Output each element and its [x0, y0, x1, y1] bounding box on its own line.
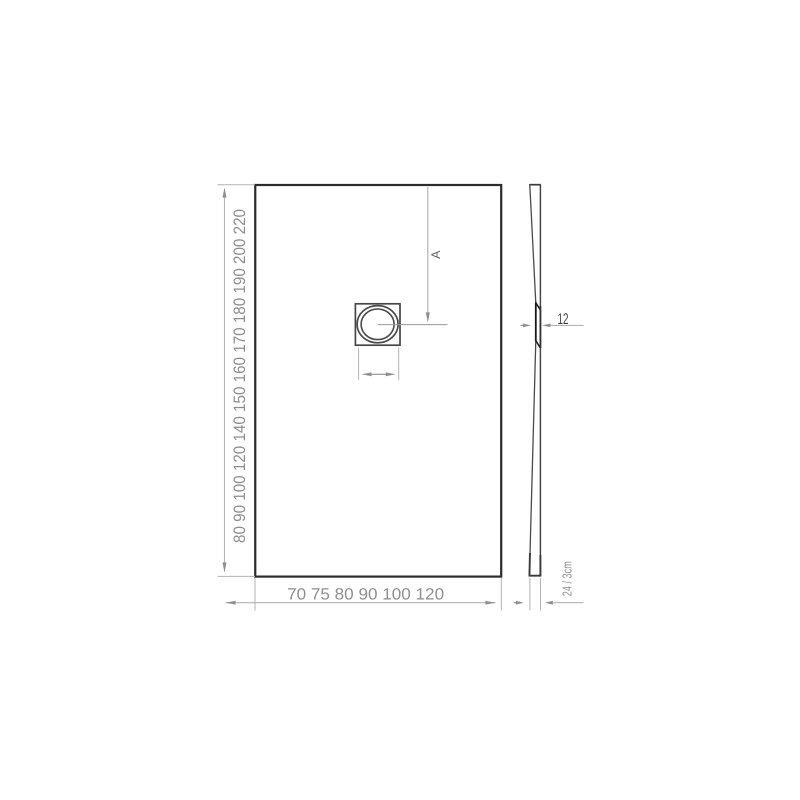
svg-text:70 75 80 90 100 120: 70 75 80 90 100 120 — [287, 586, 444, 604]
svg-text:12: 12 — [558, 311, 569, 328]
svg-text:80 90 100 120 140 150 160 170: 80 90 100 120 140 150 160 170 180 190 20… — [231, 209, 249, 543]
svg-text:24 / 3cm: 24 / 3cm — [560, 561, 575, 596]
svg-text:A: A — [429, 250, 443, 259]
